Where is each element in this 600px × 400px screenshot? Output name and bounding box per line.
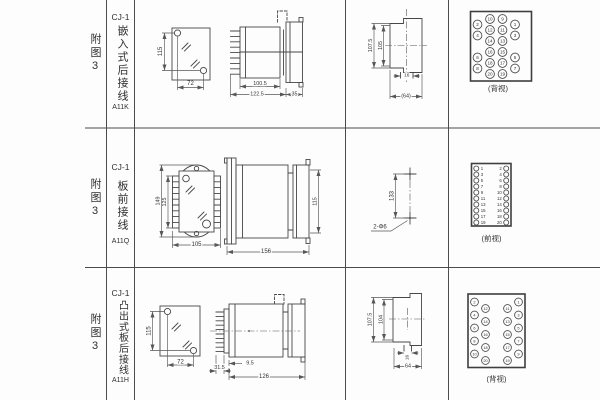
terminal-pin [504,214,509,219]
terminal-pins-comb [231,31,241,74]
terminal-pin-number: 18 [497,214,502,219]
terminal-pin-number: 13 [505,319,509,324]
terminal-pin [474,184,479,189]
rear-cap [293,165,309,238]
terminal-pin-number: 20 [487,72,493,77]
terminal-pin-number: 3 [517,313,519,318]
dim-115: 115 [147,326,153,336]
terminal-pin-number: 20 [497,220,502,225]
code-label-row2: A11Q [107,238,134,245]
terminal-pin-number: 12 [497,196,502,201]
dim-16: 16 [404,73,410,79]
flange-tab [299,18,303,23]
terminal-pin-number: 13 [481,202,486,207]
dim-72: 72 [177,359,184,365]
terminal-pin-number: 5 [517,326,519,331]
terminal-pin-number: 2 [473,300,475,305]
terminal-pin [504,184,509,189]
dim-ext-lines [227,170,321,255]
terminal-pin-number: 19 [505,358,509,363]
dim-16: 16 [405,355,411,361]
hole-center [409,173,411,175]
terminal-pin-number: 15 [505,332,509,337]
terminal-pin-number: 11 [481,196,486,201]
dim-100-5: 100.5 [253,81,267,87]
terminal-pin [474,172,479,177]
relay-body [240,27,280,78]
row1-side-view-drawing: 100.5 122.5 35 [231,11,304,98]
dim-107-5: 107.5 [368,313,374,327]
terminal-pin-number: 12 [483,306,487,311]
dim-35: 35 [292,92,298,98]
model-label-row1: CJ-1 [107,12,134,22]
terminal-pin-number: 17 [505,345,509,350]
row3-rear-cutout-drawing: 107.5 104 16 64 [368,294,427,370]
dim-107-5: 107.5 [368,39,374,53]
code-label-row1: A11K [107,104,134,111]
dim-149: 149 [156,197,162,206]
terminal-pin-number: 19 [481,220,486,225]
dim-122-5: 122.5 [250,92,264,98]
terminal-pin-number: 5 [514,55,517,60]
row1-terminal-block-rear: 1012141618209111315171924681357 [471,12,532,82]
dim-104: 104 [378,315,384,324]
terminal-pin [504,220,509,225]
mount-label-row1: 嵌入式后接线 [114,25,130,103]
front-cap [288,304,305,357]
terminal-board [179,171,214,232]
terminal-pin [474,208,479,213]
fig-label-row2: 附图3 [87,178,103,220]
fig-label-row3: 附图3 [87,313,103,355]
body-detail-lines [240,22,303,83]
mount-label-row3: 凸出式板后接线 [115,300,130,376]
terminal-pin-number: 10 [497,190,502,195]
terminal-pin-number: 6 [476,55,479,60]
dim-ext-lines [371,298,422,370]
flange-tab [225,158,228,163]
terminal-pin-number: 13 [500,39,506,44]
row3-side-view-drawing: 31.5 9.5 126 [209,295,305,381]
terminal-pin-number: 11 [505,306,509,311]
terminal-pin [504,208,509,213]
terminal-pin-number: 14 [497,202,502,207]
mount-label-row2: 板前接线 [114,180,130,232]
terminal-pin [504,166,509,171]
terminal-pin-number: 16 [487,50,493,55]
terminal-pin [474,166,479,171]
center-mark [248,330,250,332]
dim-105: 105 [378,41,384,50]
terminal-pin-number: 1 [514,22,517,27]
dim-31-5: 31.5 [214,365,225,371]
row3-terminal-block-rear: 2468101214161820111315171913579 [468,294,525,368]
dim-133: 133 [390,190,396,201]
terminal-pin-number: 19 [500,72,506,77]
terminal-pin-number: 15 [500,50,506,55]
relay-body [229,304,283,357]
cutout-outline [393,294,422,346]
terminal-pin [504,196,509,201]
hole-spec: 2-Φ6 [373,225,387,231]
row2-terminal-block-front: 1234567891011121314151617181920 [472,164,512,227]
terminal-pin-number: 11 [500,28,505,33]
row1-rear-cutout-drawing: 107.5 105 16 (64) [368,9,427,100]
row3-panel-cutout-drawing: 115 72 [147,306,201,367]
terminal-pin-number: 7 [517,339,519,344]
cap-tab [301,357,305,362]
cap-tab [306,160,310,166]
terminal-pin [474,202,479,207]
terminal-pin-number: 15 [481,208,486,213]
terminal-strip-left [173,176,180,228]
cap-tab [301,299,305,304]
terminal-pin-number: 9 [501,17,504,22]
dim-125: 125 [162,198,168,207]
figure-page: 115 72 100.5 122.5 35 107.5 105 16 (64) [0,0,600,400]
terminal-pin-number: 16 [497,208,502,213]
screw-hole [194,166,198,170]
terminal-pin-number: 16 [483,332,487,337]
terminal-pin-number: 3 [514,33,517,38]
body-detail-lines [235,304,292,357]
row2-view-label: (前视) [482,233,502,243]
fig-label-row1: 附图3 [87,33,103,75]
terminal-pin-number: 2 [476,22,479,27]
dim-115: 115 [158,46,164,56]
model-label-row2: CJ-1 [107,162,134,172]
terminal-pin-number: 8 [473,339,475,344]
row2-hole-layout-drawing: 133 2-Φ6 [371,168,416,231]
row1-view-label: (背视) [488,83,508,93]
dim-72: 72 [187,81,194,87]
terminal-pin-number: 4 [476,33,479,38]
bottom-stubs [404,346,412,352]
terminal-pin-number: 17 [481,214,486,219]
dim-115: 115 [313,197,319,206]
terminal-pin [504,178,509,183]
flange-tab [299,83,303,88]
terminal-pin-number: 6 [473,326,475,331]
row3-view-label: (背视) [487,374,507,384]
terminal-strip-right [214,176,221,228]
terminal-pin-number: 17 [500,61,506,66]
dim-9-5: 9.5 [246,361,254,367]
terminal-pin [504,202,509,207]
flange-tab [225,239,228,244]
dim-105: 105 [191,242,202,248]
terminal-pin-number: 12 [487,28,493,33]
dim-126: 126 [259,374,270,380]
phantom-clamp [278,11,288,22]
hole-center [409,217,411,219]
terminal-pin-number: 18 [487,61,493,66]
center-lines [389,308,426,330]
relay-body [236,165,288,238]
model-label-row3: CJ-1 [107,288,134,298]
terminal-pin-number: 14 [487,39,493,44]
panel-outline [160,306,200,356]
terminal-pin-number: 1 [517,300,519,305]
terminal-pin-number: 7 [514,66,517,71]
terminal-pin-number: 18 [483,345,487,350]
terminal-pin [474,214,479,219]
row1-panel-cutout-drawing: 115 72 [158,28,210,90]
terminal-pin [474,196,479,201]
row2-side-view-drawing: 156 115 [225,158,322,255]
dim-64: (64) [401,94,411,100]
terminal-pin [474,220,479,225]
cap-tab [306,238,310,244]
dim-156: 156 [261,249,272,255]
terminal-pins-comb [216,312,224,352]
row2-front-view-drawing: 149 125 105 [156,165,221,248]
terminal-pin [504,190,509,195]
terminal-pin [474,190,479,195]
terminal-pin-number: 9 [517,352,519,357]
terminal-pin-number: 10 [487,17,493,22]
dim-64: 64 [405,364,411,370]
dim-ext-lines [372,24,423,100]
code-label-row3: A11H [107,377,134,384]
terminal-pin [474,178,479,183]
terminal-pin-number: 8 [476,66,479,71]
phantom-clamp [275,295,285,305]
terminal-pin [504,172,509,177]
